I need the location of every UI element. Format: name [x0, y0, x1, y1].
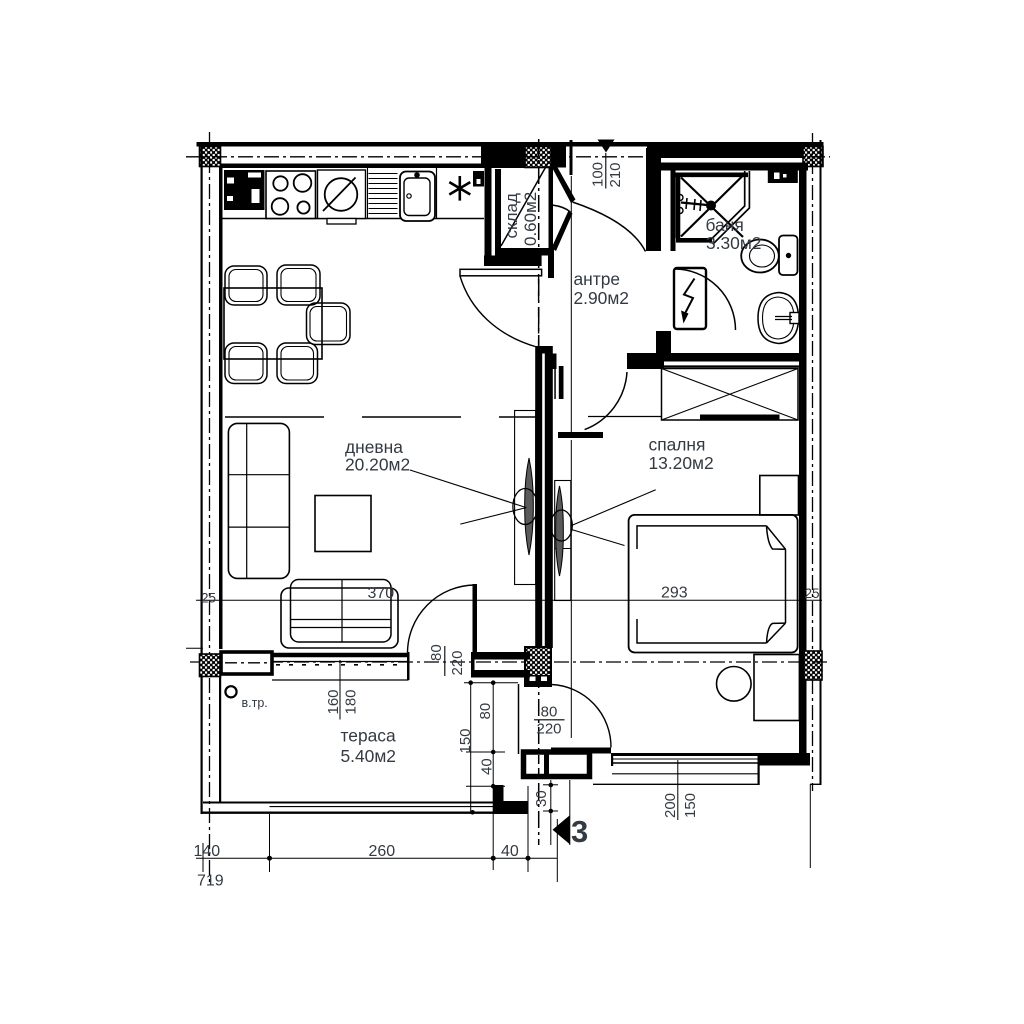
svg-text:260: 260: [369, 843, 396, 860]
svg-text:220: 220: [449, 650, 466, 675]
svg-text:100: 100: [590, 162, 607, 187]
svg-text:баня: баня: [706, 215, 744, 235]
svg-text:40: 40: [479, 758, 496, 775]
svg-text:3: 3: [571, 814, 588, 849]
svg-text:30: 30: [533, 790, 550, 807]
svg-text:210: 210: [607, 162, 624, 187]
svg-text:5.40м2: 5.40м2: [341, 746, 396, 766]
svg-text:370: 370: [368, 585, 395, 602]
svg-text:80: 80: [541, 704, 558, 721]
svg-text:25: 25: [201, 591, 216, 606]
svg-text:150: 150: [682, 793, 699, 818]
svg-text:25: 25: [805, 586, 820, 601]
svg-text:антре: антре: [574, 269, 621, 289]
svg-text:200: 200: [662, 793, 679, 818]
svg-text:160: 160: [325, 689, 342, 714]
svg-text:80: 80: [477, 703, 494, 720]
svg-text:20.20м2: 20.20м2: [345, 455, 410, 475]
svg-text:293: 293: [661, 585, 688, 602]
svg-text:719: 719: [197, 873, 224, 890]
svg-text:3.30м2: 3.30м2: [706, 233, 761, 253]
svg-text:40: 40: [501, 843, 519, 860]
svg-text:тераса: тераса: [341, 726, 396, 746]
svg-text:150: 150: [457, 728, 474, 753]
svg-text:2.90м2: 2.90м2: [574, 288, 629, 308]
svg-text:140: 140: [194, 843, 221, 860]
svg-text:220: 220: [536, 721, 561, 738]
svg-text:склад: склад: [502, 193, 521, 239]
svg-text:0.60м2: 0.60м2: [521, 192, 540, 246]
svg-text:180: 180: [343, 689, 360, 714]
svg-text:в.тр.: в.тр.: [242, 696, 268, 710]
svg-text:80: 80: [428, 644, 445, 661]
svg-text:спалня: спалня: [649, 435, 706, 455]
svg-text:13.20м2: 13.20м2: [649, 453, 714, 473]
